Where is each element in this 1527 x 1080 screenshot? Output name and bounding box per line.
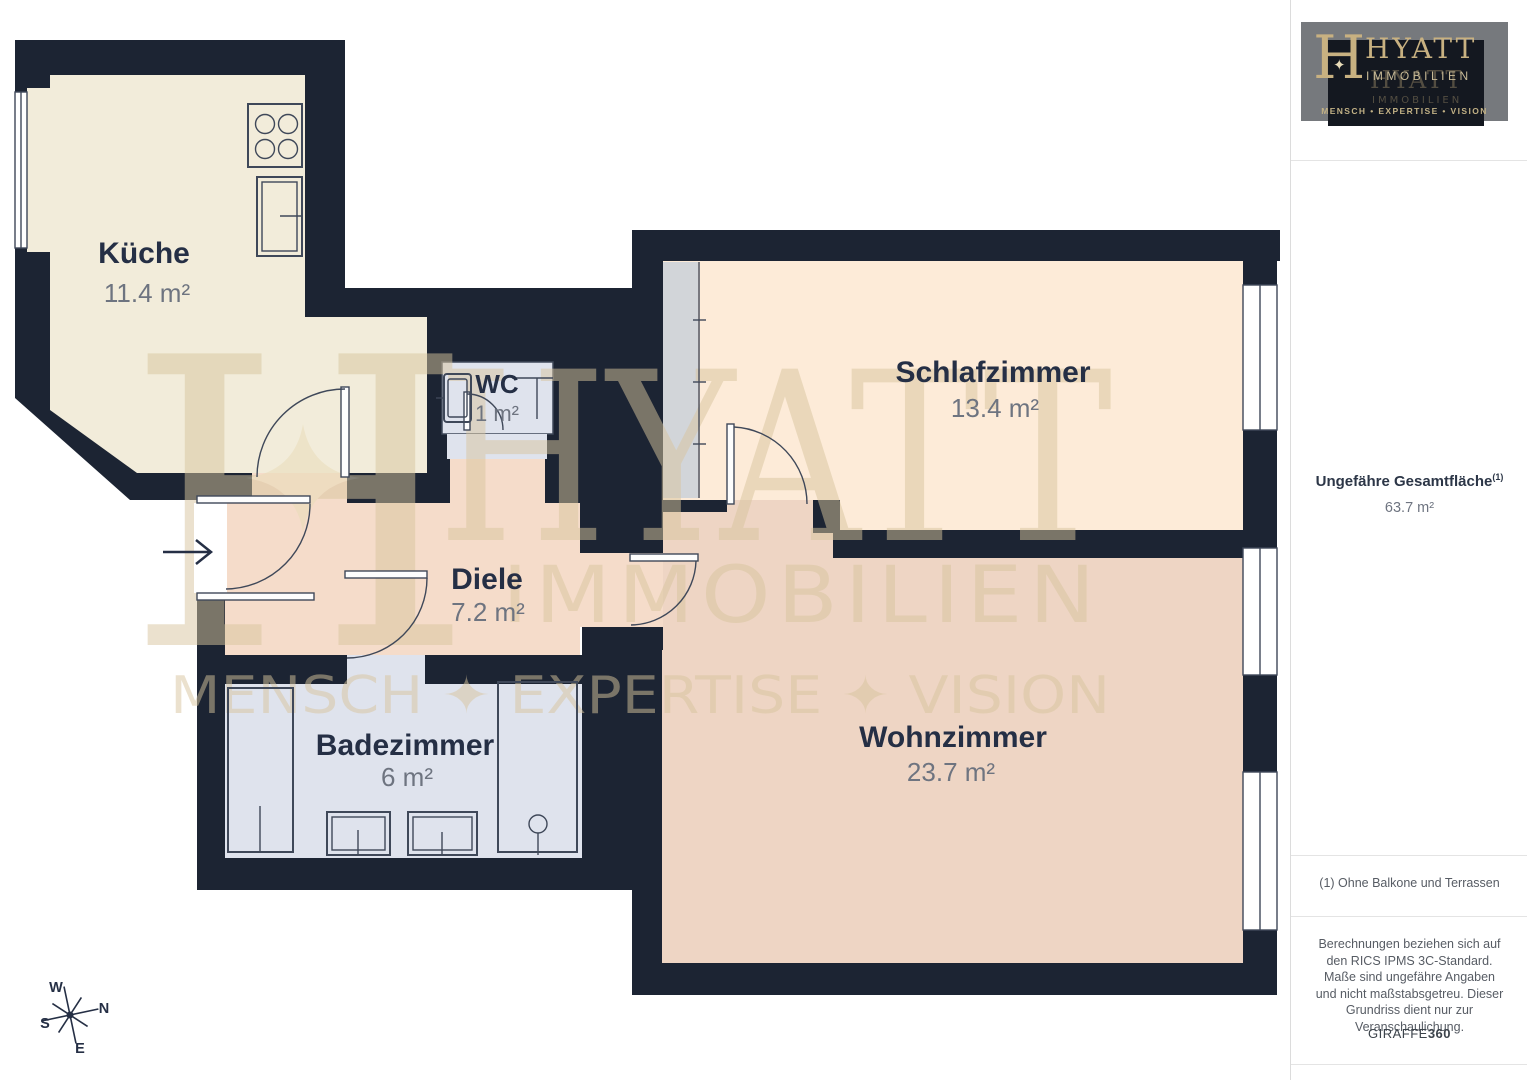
svg-text:11.4 m²: 11.4 m²: [104, 278, 191, 308]
svg-text:Diele: Diele: [451, 563, 523, 596]
svg-text:Schlafzimmer: Schlafzimmer: [895, 356, 1090, 389]
compass-east: E: [75, 1041, 85, 1057]
svg-text:Küche: Küche: [98, 237, 190, 270]
info-sidebar: HYATT IMMOBILIEN H ✦ HYATT IMMOBILIEN ME…: [1290, 0, 1527, 1080]
svg-text:1 m²: 1 m²: [475, 401, 519, 426]
watermark-division: IMMOBILIEN: [502, 551, 1102, 641]
compass-south: S: [40, 1016, 50, 1032]
kitchen-window-niche: [27, 88, 50, 252]
sidebar-divider-4: [1291, 1064, 1527, 1065]
wall-bottom: [632, 963, 1277, 995]
total-area-value: 63.7 m²: [1291, 500, 1527, 516]
footnote-marker: (1): [1492, 472, 1503, 482]
svg-text:13.4 m²: 13.4 m²: [951, 393, 1039, 423]
wall-top-right: [632, 230, 1280, 261]
room-label-diele: Diele 7.2 m²: [451, 563, 525, 627]
svg-text:6 m²: 6 m²: [381, 762, 433, 792]
floorplan-drawing: H HYATT IMMOBILIEN MENSCH ✦ EXPERTISE ✦ …: [0, 0, 1290, 1080]
logo-artwork: H ✦ HYATT IMMOBILIEN MENSCH • EXPERTISE …: [1301, 22, 1508, 121]
svg-text:Badezimmer: Badezimmer: [316, 729, 495, 762]
logo-sparkle-icon: ✦: [1333, 56, 1346, 74]
wohnzimmer-window-upper: [1243, 548, 1277, 675]
svg-text:Wohnzimmer: Wohnzimmer: [859, 721, 1047, 754]
svg-text:23.7 m²: 23.7 m²: [907, 757, 995, 787]
disclaimer-text: Berechnungen beziehen sich auf den RICS …: [1313, 936, 1506, 1035]
logo-tagline: MENSCH • EXPERTISE • VISION: [1303, 106, 1506, 116]
wohnzimmer-window-lower: [1243, 772, 1277, 930]
sidebar-divider-3: [1291, 916, 1527, 917]
watermark-tagline: MENSCH ✦ EXPERTISE ✦ VISION: [170, 666, 1110, 726]
logo-division: IMMOBILIEN: [1366, 69, 1472, 83]
sidebar-divider-1: [1291, 160, 1527, 161]
sidebar-divider-2: [1291, 855, 1527, 856]
compass-west: W: [49, 980, 63, 996]
kitchen-window: [15, 92, 27, 248]
total-area-label: Ungefähre Gesamtfläche(1): [1291, 472, 1527, 490]
compass-icon: W N S E: [40, 980, 109, 1057]
room-label-wc: WC 1 m²: [475, 369, 519, 426]
compass-north: N: [99, 1001, 109, 1017]
balcony-footnote: (1) Ohne Balkone und Terrassen: [1301, 876, 1518, 890]
svg-text:7.2 m²: 7.2 m²: [451, 597, 525, 627]
giraffe360-credit: GIRAFFE360: [1291, 1026, 1527, 1041]
company-logo: HYATT IMMOBILIEN H ✦ HYATT IMMOBILIEN ME…: [1301, 22, 1508, 121]
total-area-block: Ungefähre Gesamtfläche(1) 63.7 m²: [1291, 472, 1527, 516]
logo-name: HYATT: [1365, 32, 1477, 65]
svg-text:WC: WC: [475, 369, 519, 399]
wall-bath-bottom: [197, 858, 632, 890]
schlafzimmer-window: [1243, 285, 1277, 430]
watermark: H HYATT IMMOBILIEN MENSCH ✦ EXPERTISE ✦ …: [126, 275, 1113, 740]
floorplan-page: H HYATT IMMOBILIEN MENSCH ✦ EXPERTISE ✦ …: [0, 0, 1527, 1080]
